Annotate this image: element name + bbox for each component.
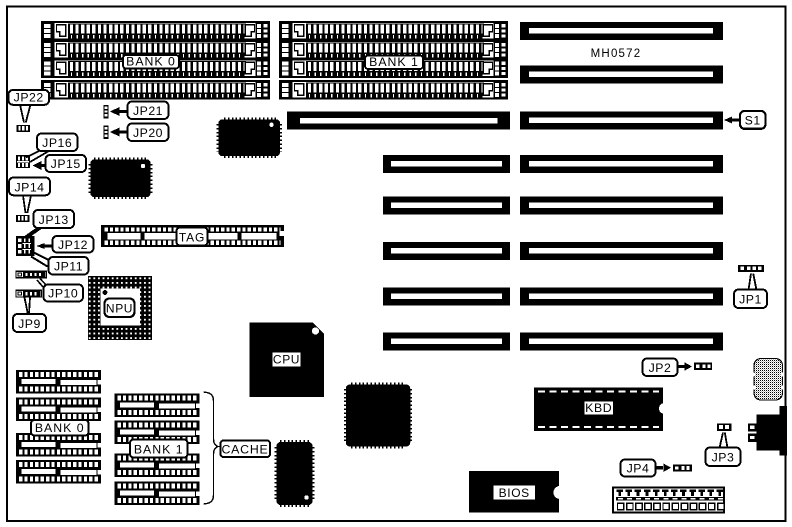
svg-text:JP16: JP16 <box>42 136 72 150</box>
svg-text:BANK 0: BANK 0 <box>35 421 85 435</box>
svg-text:JP10: JP10 <box>48 287 78 301</box>
svg-text:JP22: JP22 <box>14 91 44 105</box>
svg-text:CACHE: CACHE <box>221 442 268 456</box>
svg-text:JP13: JP13 <box>39 213 69 227</box>
svg-text:JP15: JP15 <box>51 157 81 171</box>
svg-text:JP4: JP4 <box>627 462 650 476</box>
svg-text:BANK 0: BANK 0 <box>126 55 176 69</box>
svg-text:NPU: NPU <box>106 302 133 316</box>
svg-text:JP3: JP3 <box>712 451 735 465</box>
svg-text:JP20: JP20 <box>133 126 163 140</box>
svg-text:JP2: JP2 <box>649 361 672 375</box>
svg-text:BANK 1: BANK 1 <box>369 55 419 69</box>
svg-text:BANK 1: BANK 1 <box>134 442 184 456</box>
svg-text:S1: S1 <box>745 114 761 128</box>
svg-text:JP1: JP1 <box>739 293 762 307</box>
svg-text:KBD: KBD <box>585 401 612 415</box>
svg-text:TAG: TAG <box>179 231 205 245</box>
svg-text:MH0572: MH0572 <box>591 48 642 60</box>
svg-text:JP21: JP21 <box>133 104 163 118</box>
svg-text:JP14: JP14 <box>14 180 44 194</box>
svg-text:BIOS: BIOS <box>499 486 530 500</box>
svg-text:JP9: JP9 <box>18 317 41 331</box>
svg-text:JP11: JP11 <box>54 260 83 274</box>
svg-text:CPU: CPU <box>273 352 300 366</box>
svg-text:JP12: JP12 <box>58 238 88 252</box>
